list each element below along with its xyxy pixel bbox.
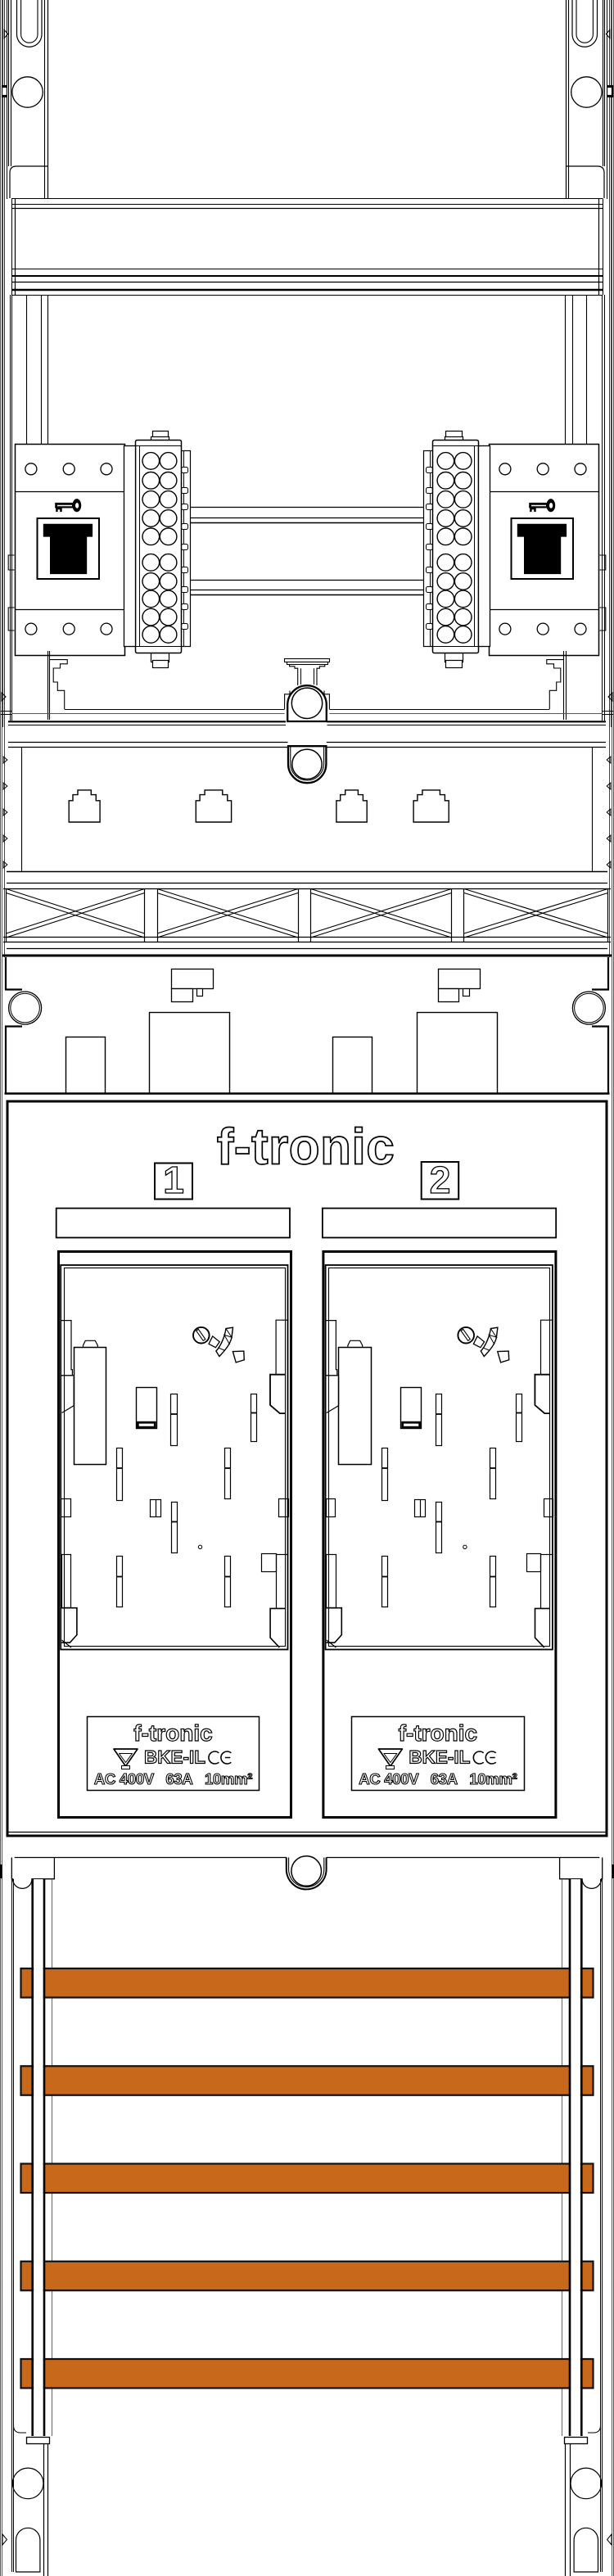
svg-text:BKE-IL: BKE-IL [409,1747,470,1768]
svg-text:f-tronic: f-tronic [399,1720,477,1746]
svg-text:AC 400V 63A 10mm²: AC 400V 63A 10mm² [94,1770,252,1787]
svg-text:1: 1 [163,1159,184,1201]
svg-text:f-tronic: f-tronic [217,1119,395,1176]
svg-text:BKE-IL: BKE-IL [144,1747,205,1768]
svg-text:f-tronic: f-tronic [133,1720,212,1746]
svg-text:2: 2 [430,1159,451,1201]
svg-text:AC 400V 63A 10mm²: AC 400V 63A 10mm² [359,1770,517,1787]
